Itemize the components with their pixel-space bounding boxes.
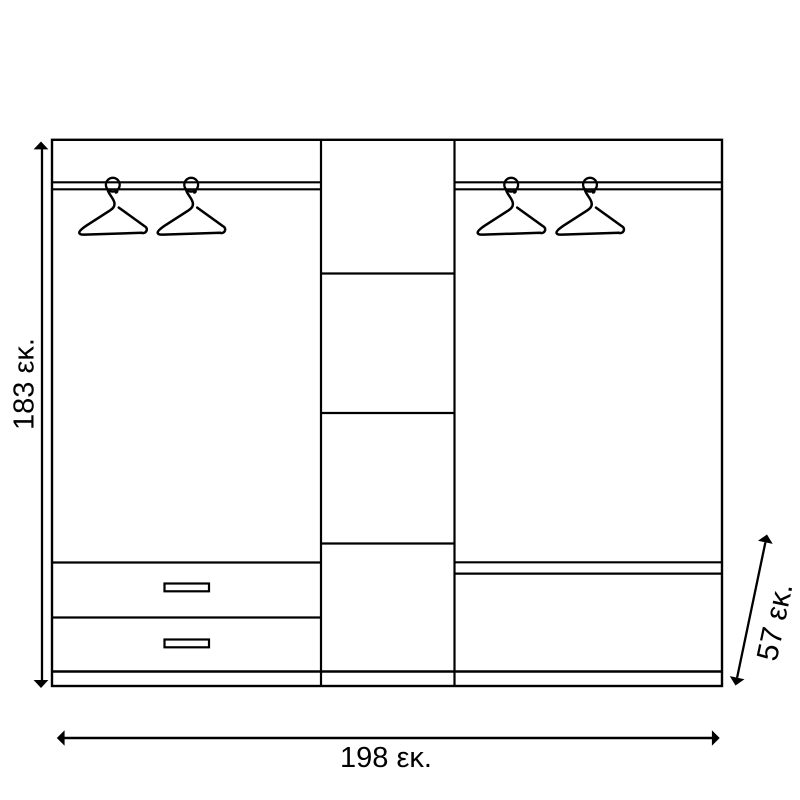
svg-text:198 εκ.: 198 εκ. [340,742,432,774]
svg-text:183 εκ.: 183 εκ. [9,338,41,430]
